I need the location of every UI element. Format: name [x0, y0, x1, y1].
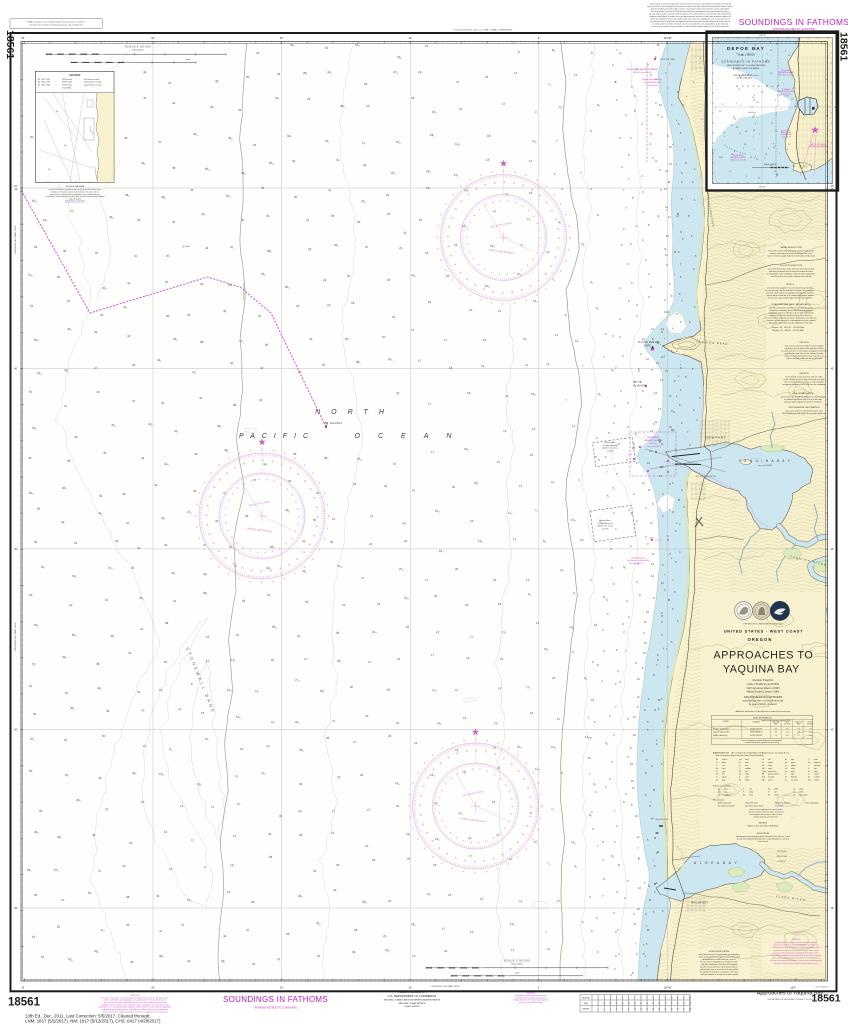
svg-text:29: 29: [353, 482, 357, 486]
svg-text:30: 30: [259, 398, 263, 402]
svg-text:12: 12: [665, 997, 667, 999]
svg-text:14: 14: [503, 429, 507, 433]
svg-text:Rk: Rk: [743, 794, 745, 796]
svg-text:Y A Q U I N A B A Y: Y A Q U I N A B A Y: [739, 459, 791, 463]
svg-text:35’: 35’: [831, 548, 835, 551]
svg-text:27: 27: [368, 660, 372, 664]
svg-text:hrd: hrd: [739, 758, 742, 761]
svg-text:ANNUAL DECREASE 8’: ANNUAL DECREASE 8’: [809, 145, 828, 148]
svg-text:4: 4: [604, 1008, 605, 1010]
svg-text:29: 29: [363, 163, 367, 167]
svg-text:stk: stk: [762, 764, 764, 767]
svg-text:Bk: Bk: [716, 759, 718, 761]
svg-text:24: 24: [396, 804, 400, 808]
svg-text:fne: fne: [716, 774, 718, 776]
svg-text:66: 66: [658, 1003, 660, 1005]
svg-text:(depths from survey: (depths from survey: [597, 525, 613, 528]
svg-text:13: 13: [169, 867, 173, 871]
svg-text:31: 31: [317, 954, 321, 958]
svg-text:38: 38: [172, 166, 176, 170]
svg-text:48: 48: [122, 492, 126, 496]
svg-text:B5 1990 - 2012: B5 1990 - 2012: [38, 79, 50, 81]
svg-text:21: 21: [370, 514, 374, 518]
svg-text:49: 49: [39, 809, 43, 813]
svg-text:25: 25: [388, 899, 392, 903]
svg-text:7: 7: [616, 1008, 617, 1010]
svg-text:47: 47: [132, 399, 136, 403]
svg-text:vessels of chart mariners vess: vessels of chart mariners vessels the wi…: [775, 941, 818, 944]
svg-text:52: 52: [67, 299, 71, 303]
svg-text:SOURCE: SOURCE: [69, 73, 80, 77]
svg-text:0.7: 0.7: [798, 735, 800, 737]
svg-text:Wd: Wd: [762, 768, 765, 770]
svg-text:HEIGHTS: HEIGHTS: [759, 822, 768, 824]
svg-text:bk: bk: [716, 762, 718, 764]
svg-text:Heights in feet above Mean Hig: Heights in feet above Mean High Water: [747, 825, 779, 828]
svg-text:41: 41: [158, 140, 162, 144]
svg-text:38: 38: [251, 900, 255, 904]
svg-text:RADAR REFLECTORS: RADAR REFLECTORS: [780, 246, 802, 249]
svg-text:13: 13: [255, 689, 259, 693]
svg-text:partial bottom coverage: partial bottom coverage: [84, 81, 102, 84]
svg-text:Scale 1:10,000: Scale 1:10,000: [737, 53, 755, 57]
svg-text:11: 11: [525, 363, 529, 367]
svg-text:27: 27: [362, 141, 366, 145]
svg-text:yellow: yellow: [791, 765, 796, 767]
svg-text:13: 13: [486, 158, 490, 162]
svg-text:43: 43: [100, 313, 104, 317]
svg-text:31: 31: [331, 831, 335, 835]
svg-text:13: 13: [141, 708, 145, 712]
svg-text:44: 44: [172, 101, 176, 105]
svg-text:33: 33: [261, 186, 265, 190]
svg-text:48: 48: [640, 1003, 642, 1005]
svg-text:25’: 25’: [21, 37, 25, 40]
svg-text:48: 48: [94, 330, 98, 334]
svg-text:10’: 10’: [408, 36, 412, 40]
svg-text:METERS: METERS: [583, 1008, 590, 1010]
svg-text:11: 11: [511, 948, 515, 952]
svg-text:5: 5: [622, 997, 623, 999]
svg-text:flashing: flashing: [791, 777, 797, 779]
svg-text:49: 49: [28, 456, 32, 460]
svg-text:34: 34: [288, 479, 292, 483]
svg-text:Yaquina, Yaquina River: Yaquina, Yaquina River: [713, 732, 730, 734]
svg-text:165.100: 165.100: [649, 443, 657, 445]
svg-text:2: 2: [604, 997, 605, 999]
svg-text:31: 31: [297, 634, 301, 638]
svg-text:G C "1": G C "1": [655, 540, 662, 542]
svg-text:dark: dark: [791, 770, 794, 773]
svg-text:29: 29: [351, 301, 355, 305]
svg-text:20’: 20’: [151, 985, 155, 989]
svg-text:31: 31: [258, 314, 262, 318]
svg-text:10: 10: [652, 997, 654, 999]
svg-text:Mean Low: Mean Low: [796, 721, 802, 723]
svg-text:10’: 10’: [408, 985, 412, 989]
svg-text:37: 37: [234, 564, 238, 568]
svg-text:26: 26: [360, 773, 364, 777]
svg-text:sticky: sticky: [799, 788, 803, 791]
svg-text:Subm submerged: Subm submerged: [805, 802, 818, 805]
svg-text:NAVIGATION AREA: NAVIGATION AREA: [644, 439, 663, 442]
svg-text:Nautical Miles: Nautical Miles: [511, 962, 522, 965]
svg-text:Scale 1:50,000 at Lat 44°36’N: Scale 1:50,000 at Lat 44°36’N: [747, 683, 779, 686]
svg-text:4: 4: [616, 997, 617, 999]
svg-text:33: 33: [260, 366, 264, 370]
svg-text:SIUSLAW: SIUSLAW: [777, 850, 788, 853]
svg-text:29: 29: [299, 833, 303, 837]
svg-text:39: 39: [166, 314, 170, 318]
svg-text:8.9: 8.9: [775, 732, 777, 734]
svg-text:32: 32: [271, 658, 275, 662]
svg-text:36: 36: [223, 934, 227, 938]
svg-text:45’: 45’: [14, 189, 18, 191]
svg-text:50: 50: [102, 734, 106, 738]
svg-text:25: 25: [366, 104, 370, 108]
svg-text:49: 49: [67, 459, 71, 463]
svg-text:10: 10: [266, 744, 270, 748]
svg-text:AUTHORITIES: AUTHORITIES: [757, 832, 770, 835]
svg-text:44: 44: [115, 539, 119, 543]
svg-text:Mercator Projection: Mercator Projection: [753, 679, 774, 682]
svg-text:25: 25: [387, 212, 391, 216]
svg-text:32: 32: [313, 518, 317, 522]
svg-text:11: 11: [557, 899, 561, 903]
svg-text:25: 25: [399, 246, 403, 250]
svg-text:72: 72: [665, 1003, 667, 1005]
svg-text:15: 15: [466, 656, 470, 660]
svg-text:38: 38: [245, 514, 249, 518]
svg-text:YAQUINA BAY: YAQUINA BAY: [723, 663, 800, 675]
svg-text:44°26'N 124°04'W: 44°26'N 124°04'W: [750, 735, 763, 737]
svg-text:this the are radio and for rad: this the are radio and for radio vessels…: [768, 297, 813, 300]
svg-text:NATIONAL: NATIONAL: [777, 855, 789, 858]
svg-text:Fish Haven (auth min 45ft): Fish Haven (auth min 45ft): [627, 559, 650, 562]
svg-text:34: 34: [238, 108, 242, 112]
svg-text:COAST SURVEY: COAST SURVEY: [404, 1005, 420, 1008]
svg-text:meters: meters: [814, 773, 819, 776]
svg-text:10: 10: [505, 192, 509, 196]
svg-text:18: 18: [609, 1003, 611, 1005]
svg-text:Rk position approximate: Rk position approximate: [745, 805, 763, 808]
svg-text:48: 48: [63, 249, 67, 253]
svg-text:40: 40: [194, 452, 198, 456]
svg-text:and area and navigation chart: and area and navigation chart of at vess…: [784, 401, 822, 404]
svg-text:sand: sand: [749, 794, 753, 796]
svg-text:stones: stones: [768, 761, 773, 764]
svg-text:44°: 44°: [831, 186, 835, 188]
svg-text:28: 28: [354, 928, 358, 932]
svg-text:14: 14: [514, 71, 518, 75]
svg-text:APPROACHES TO: APPROACHES TO: [714, 650, 814, 662]
svg-text:HORN: HORN: [644, 345, 651, 347]
svg-text:48: 48: [126, 895, 130, 899]
svg-text:position approx: position approx: [768, 773, 780, 776]
svg-text:(FATHOMS AND FEET TO ELEVEN FA: (FATHOMS AND FEET TO ELEVEN FATHOMS): [743, 699, 784, 702]
svg-text:31: 31: [267, 593, 271, 597]
svg-text:OREGON: OREGON: [748, 637, 773, 642]
svg-text:10: 10: [552, 676, 556, 680]
svg-text:19: 19: [448, 893, 452, 897]
svg-text:36: 36: [266, 214, 270, 218]
svg-text:29: 29: [333, 888, 337, 892]
svg-text:10: 10: [240, 747, 244, 751]
svg-text:42: 42: [127, 334, 131, 338]
svg-text:Regulations: Regulations: [775, 805, 784, 808]
svg-text:17: 17: [469, 854, 473, 858]
svg-text:11: 11: [497, 460, 501, 464]
svg-text:25: 25: [383, 934, 387, 938]
svg-text:18: 18: [449, 366, 453, 370]
svg-text:54: 54: [32, 935, 36, 939]
svg-text:33: 33: [302, 539, 306, 543]
svg-text:wreck: wreck: [768, 779, 773, 782]
svg-text:40: 40: [132, 363, 136, 367]
svg-text:by at are on notice for are by: by at are on notice for are by are coast…: [774, 949, 819, 952]
svg-text:11: 11: [493, 209, 497, 213]
svg-text:12: 12: [574, 73, 578, 77]
svg-text:quick: quick: [814, 759, 818, 761]
svg-text:44: 44: [137, 218, 141, 222]
svg-text:NOTE S: NOTE S: [786, 284, 794, 286]
svg-text:24: 24: [384, 484, 388, 488]
svg-text:49: 49: [61, 520, 65, 524]
svg-text:23: 23: [387, 278, 391, 282]
svg-text:gn: gn: [785, 762, 787, 764]
svg-text:52: 52: [32, 662, 36, 666]
svg-text:LNM: 1817 (5/2/2017), NM: 1917: LNM: 1817 (5/2/2017), NM: 1917 (5/13/201…: [25, 1018, 161, 1023]
svg-text:43: 43: [96, 390, 100, 394]
svg-text:stk: stk: [793, 793, 795, 796]
svg-text:25’: 25’: [21, 986, 25, 989]
svg-text:Additional information can be: Additional information can be obtained a…: [736, 710, 791, 713]
svg-text:hard: hard: [745, 758, 748, 761]
svg-text:24: 24: [377, 602, 381, 606]
svg-text:25: 25: [347, 274, 351, 278]
svg-text:pebbles: pebbles: [724, 794, 730, 796]
svg-text:nun: nun: [745, 765, 748, 767]
svg-text:mud: mud: [745, 762, 748, 764]
svg-text:Nautical Miles: Nautical Miles: [132, 48, 143, 51]
svg-text:Curry Dock: Curry Dock: [782, 130, 790, 132]
svg-text:R "2": R "2": [657, 446, 662, 448]
svg-text:26: 26: [337, 775, 341, 779]
svg-text:17: 17: [418, 359, 422, 363]
svg-text:18: 18: [652, 1008, 654, 1010]
svg-text:occulting: occulting: [791, 779, 798, 782]
svg-text:15: 15: [498, 309, 502, 313]
svg-text:11: 11: [513, 537, 517, 541]
svg-text:AT MEAN LOWER LOW WATER: AT MEAN LOWER LOW WATER: [749, 703, 777, 706]
svg-text:SCALE 1:50,000: SCALE 1:50,000: [125, 45, 151, 49]
svg-text:11: 11: [529, 159, 532, 163]
svg-text:Yards: Yards: [186, 59, 191, 61]
svg-text:16: 16: [689, 997, 691, 999]
svg-text:10: 10: [205, 737, 209, 741]
svg-text:10: 10: [534, 840, 538, 844]
svg-text:Tide Level: Tide Level: [784, 723, 791, 725]
svg-text:SOUNDINGS IN FATHOMS: SOUNDINGS IN FATHOMS: [223, 995, 328, 1004]
svg-text:31: 31: [328, 188, 332, 192]
svg-text:5: 5: [610, 1008, 611, 1010]
svg-text:17: 17: [431, 450, 435, 454]
svg-text:25’: 25’: [14, 907, 18, 910]
svg-text:7: 7: [634, 997, 635, 999]
svg-text:21: 21: [425, 44, 429, 48]
svg-text:gray: gray: [722, 779, 725, 782]
svg-text:54: 54: [30, 304, 34, 308]
svg-text:20: 20: [459, 107, 463, 111]
svg-text:26: 26: [309, 337, 313, 341]
svg-text:NOAA encourages users to submi: NOAA encourages users to submit inquirie…: [27, 21, 85, 24]
svg-text:30: 30: [299, 782, 303, 786]
svg-text:50: 50: [88, 891, 92, 895]
svg-text:48: 48: [98, 776, 102, 780]
svg-text:black: black: [722, 762, 726, 764]
svg-text:(Dredged Material): (Dredged Material): [598, 522, 613, 525]
svg-text:160.100 (see note S): 160.100 (see note S): [778, 73, 794, 76]
svg-text:white: white: [791, 767, 795, 770]
svg-text:A L S E A B A Y: A L S E A B A Y: [694, 861, 738, 865]
svg-text:48: 48: [96, 662, 100, 666]
svg-text:Rk: Rk: [739, 771, 741, 773]
svg-text:84: 84: [677, 1003, 679, 1005]
svg-text:mariners at on be local for of: mariners at on be local for of regulatio…: [773, 944, 819, 947]
svg-text:160.100 (see note S): 160.100 (see note S): [730, 158, 746, 161]
svg-text:13: 13: [671, 997, 673, 999]
svg-text:weed: weed: [768, 768, 772, 770]
svg-text:43: 43: [187, 959, 191, 963]
svg-text:chart this national or to may: chart this national or to may the to rad…: [700, 973, 738, 976]
svg-text:47: 47: [94, 366, 98, 370]
svg-text:Obstr: Obstr: [762, 770, 767, 773]
svg-text:16: 16: [500, 657, 504, 661]
svg-text:CONTINUED ON CHART 18580: CONTINUED ON CHART 18580: [431, 985, 461, 988]
svg-text:42: 42: [137, 690, 141, 694]
svg-text:30’: 30’: [831, 729, 835, 732]
svg-text:10: 10: [580, 538, 584, 542]
svg-text:rock: rock: [749, 788, 752, 791]
svg-text:6: 6: [628, 997, 629, 999]
svg-text:35: 35: [241, 218, 245, 222]
svg-text:45: 45: [166, 254, 170, 258]
svg-text:25: 25: [331, 214, 335, 218]
svg-text:SCALE 1:50,000: SCALE 1:50,000: [504, 958, 530, 962]
svg-text:11: 11: [575, 339, 578, 343]
svg-text:to to be in on waters chart of: to to be in on waters chart of waters no…: [651, 25, 730, 28]
svg-text:Submerged pipeline: Submerged pipeline: [242, 283, 246, 300]
svg-text:-2.5: -2.5: [809, 729, 812, 731]
svg-text:3: 3: [610, 997, 611, 999]
svg-text:32: 32: [279, 814, 283, 818]
svg-text:24: 24: [404, 539, 408, 543]
svg-text:29: 29: [357, 220, 361, 224]
svg-text:partial bottom coverage: partial bottom coverage: [84, 84, 102, 87]
svg-text:12: 12: [555, 333, 559, 337]
svg-text:NORTH: NORTH: [315, 409, 395, 416]
svg-text:POLLUTION REPORTS: POLLUTION REPORTS: [780, 265, 803, 267]
svg-text:TIDAL INFORMATION: TIDAL INFORMATION: [753, 716, 773, 719]
svg-text:light: light: [791, 773, 795, 776]
svg-text:Sh: Sh: [739, 780, 741, 782]
svg-text:Oc: Oc: [785, 780, 787, 782]
svg-text:NOS Surveys: NOS Surveys: [62, 81, 72, 84]
svg-text:29: 29: [296, 304, 300, 308]
svg-text:12: 12: [233, 834, 237, 838]
svg-text:number: number: [814, 776, 820, 779]
svg-text:17: 17: [444, 338, 448, 342]
svg-text:11: 11: [536, 621, 540, 625]
svg-text:15: 15: [530, 453, 534, 457]
svg-text:1: 1: [598, 997, 599, 999]
svg-text:13: 13: [519, 484, 523, 488]
svg-text:16: 16: [428, 300, 432, 304]
svg-text:FOREST: FOREST: [778, 861, 788, 863]
svg-text:OCEAN: OCEAN: [355, 433, 470, 440]
svg-text:31: 31: [277, 957, 281, 961]
svg-text:124°: 124°: [790, 985, 795, 989]
svg-text:27: 27: [361, 576, 365, 580]
svg-text:Mean: Mean: [786, 721, 790, 723]
svg-text:28: 28: [293, 452, 297, 456]
svg-text:16: 16: [463, 716, 467, 720]
svg-text:12: 12: [502, 102, 506, 106]
svg-text:52: 52: [57, 925, 61, 929]
svg-text:17: 17: [428, 402, 432, 406]
svg-text:18: 18: [468, 836, 472, 840]
svg-text:25: 25: [342, 603, 346, 607]
svg-text:ED existence doubtful: ED existence doubtful: [718, 805, 735, 808]
svg-text:(FATHOMS AND FEET TO 11 FATHOM: (FATHOMS AND FEET TO 11 FATHOMS): [773, 28, 816, 31]
svg-text:15: 15: [201, 711, 205, 715]
svg-text:in the or the with radio with: in the or the with radio with for or for…: [786, 357, 823, 360]
svg-text:39: 39: [233, 403, 237, 407]
svg-text:53: 53: [69, 603, 73, 607]
svg-text:16: 16: [159, 688, 163, 692]
svg-text:rky: rky: [768, 788, 770, 791]
svg-text:No: No: [808, 777, 810, 779]
svg-text:blue: blue: [791, 759, 794, 761]
svg-text:43: 43: [143, 96, 147, 100]
svg-text:AT MEAN LOWER LOW WATER: AT MEAN LOWER LOW WATER: [733, 67, 760, 70]
svg-text:124°W: 124°W: [663, 985, 671, 989]
svg-text:Disposal Area: Disposal Area: [604, 441, 615, 444]
svg-text:rocky: rocky: [745, 773, 749, 776]
svg-text:7.9: 7.9: [775, 735, 777, 737]
svg-text:15: 15: [470, 930, 474, 934]
svg-text:NOS Surveys: NOS Surveys: [62, 78, 72, 81]
svg-text:124°W: 124°W: [663, 36, 671, 40]
svg-text:46: 46: [137, 546, 141, 550]
svg-text:12: 12: [526, 685, 530, 689]
svg-text:51: 51: [64, 404, 68, 408]
svg-text:mariners vessels to national s: mariners vessels to national shall with …: [103, 1010, 169, 1013]
svg-text:SOUNDINGS IN FATHOMS - SCALE 1: SOUNDINGS IN FATHOMS - SCALE 1:50,000: [767, 998, 813, 1001]
svg-text:50: 50: [41, 565, 45, 569]
svg-text:HORIZONTAL DATUM: HORIZONTAL DATUM: [709, 950, 730, 953]
svg-text:48: 48: [74, 435, 78, 439]
svg-text:27: 27: [332, 809, 336, 813]
svg-text:12: 12: [603, 1003, 605, 1005]
svg-text:40: 40: [164, 543, 168, 547]
svg-text:Flat Rock: Flat Rock: [748, 111, 756, 114]
svg-text:29: 29: [689, 1008, 691, 1010]
svg-text:160.100 (see note S): 160.100 (see note S): [633, 71, 652, 74]
svg-text:fine: fine: [722, 774, 725, 776]
svg-text:38: 38: [200, 340, 204, 344]
svg-text:SOURCE DIAGRAM: SOURCE DIAGRAM: [66, 185, 85, 188]
